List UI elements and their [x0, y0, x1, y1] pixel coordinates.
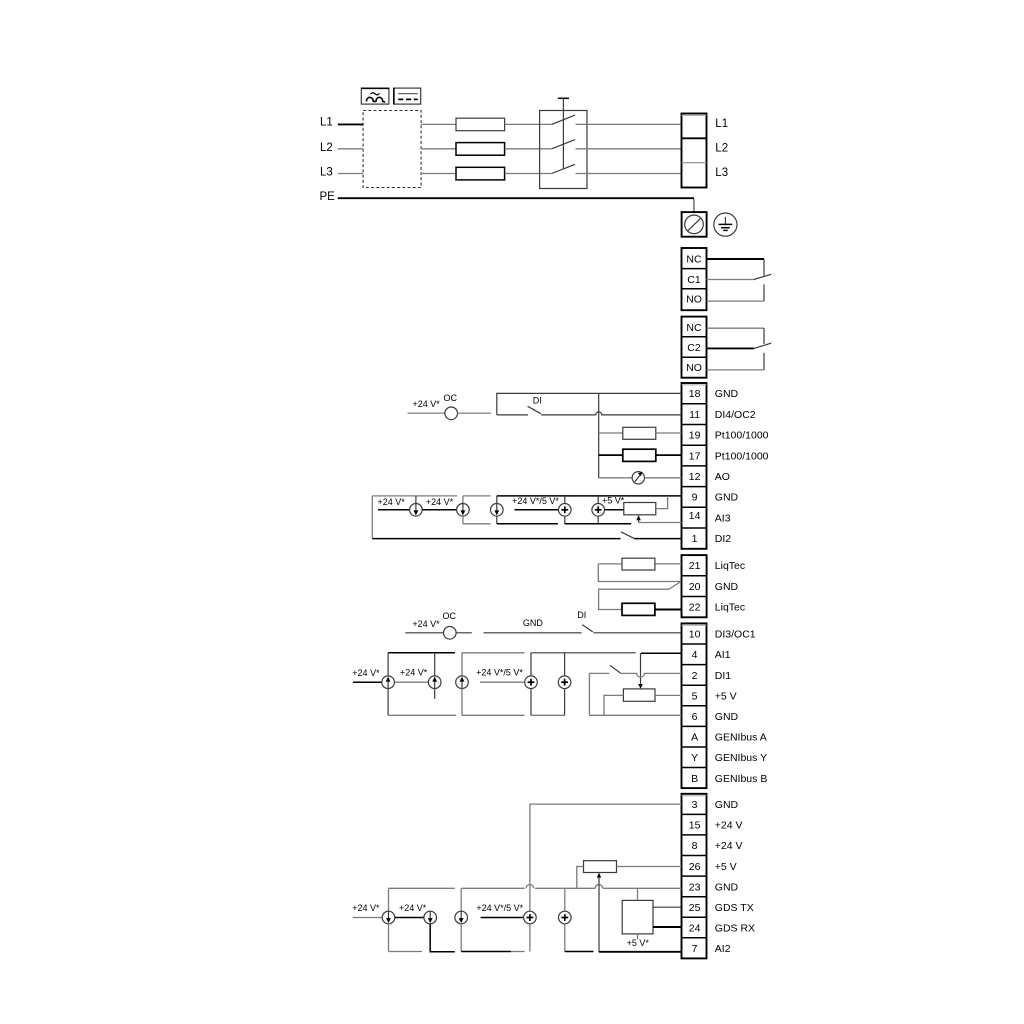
- svg-text:OC: OC: [443, 611, 457, 621]
- svg-text:+5 V*: +5 V*: [602, 496, 625, 506]
- svg-text:NO: NO: [686, 362, 702, 374]
- svg-text:6: 6: [692, 711, 698, 723]
- svg-text:+24 V: +24 V: [715, 820, 743, 832]
- svg-text:GENIbus A: GENIbus A: [715, 732, 767, 744]
- svg-text:+24 V*: +24 V*: [426, 497, 454, 507]
- svg-text:+24 V*: +24 V*: [412, 619, 440, 629]
- svg-text:NO: NO: [686, 293, 702, 305]
- svg-text:A: A: [691, 732, 698, 744]
- svg-text:GND: GND: [715, 799, 739, 811]
- svg-text:+5 V*: +5 V*: [627, 938, 650, 948]
- svg-text:+24 V: +24 V: [715, 840, 743, 852]
- svg-text:5: 5: [692, 690, 698, 702]
- svg-text:14: 14: [689, 510, 701, 522]
- svg-text:GND: GND: [715, 492, 739, 504]
- svg-text:NC: NC: [686, 253, 702, 265]
- svg-text:+24 V*: +24 V*: [399, 903, 427, 913]
- svg-text:B: B: [691, 773, 698, 785]
- svg-text:+5 V: +5 V: [715, 861, 737, 873]
- svg-text:22: 22: [689, 602, 701, 614]
- svg-text:DI1: DI1: [715, 670, 732, 682]
- svg-text:15: 15: [689, 820, 701, 832]
- svg-text:GENIbus Y: GENIbus Y: [715, 752, 767, 764]
- svg-text:DI: DI: [533, 395, 542, 405]
- svg-text:LiqTec: LiqTec: [715, 560, 745, 572]
- svg-text:23: 23: [689, 881, 701, 893]
- svg-text:GND: GND: [715, 881, 739, 893]
- svg-text:9: 9: [692, 492, 698, 504]
- svg-text:L3: L3: [320, 166, 333, 178]
- svg-text:L1: L1: [320, 116, 333, 128]
- svg-text:+24 V*: +24 V*: [352, 668, 380, 678]
- svg-text:L2: L2: [715, 143, 728, 155]
- svg-text:1: 1: [692, 533, 698, 545]
- svg-text:DI3/OC1: DI3/OC1: [715, 629, 756, 641]
- svg-text:DI4/OC2: DI4/OC2: [715, 409, 756, 421]
- svg-text:LiqTec: LiqTec: [715, 602, 745, 614]
- svg-text:GND: GND: [715, 388, 739, 400]
- svg-text:+24 V*/5 V*: +24 V*/5 V*: [512, 496, 559, 506]
- svg-text:11: 11: [689, 409, 700, 421]
- svg-text:21: 21: [689, 560, 701, 572]
- svg-text:AO: AO: [715, 471, 730, 483]
- svg-text:+24 V*: +24 V*: [352, 903, 380, 913]
- svg-text:OC: OC: [444, 393, 458, 403]
- svg-text:+24 V*: +24 V*: [378, 497, 406, 507]
- svg-text:20: 20: [689, 581, 701, 593]
- svg-text:L2: L2: [320, 142, 333, 154]
- svg-text:DI2: DI2: [715, 533, 732, 545]
- svg-text:PE: PE: [320, 191, 336, 203]
- svg-text:DI: DI: [577, 610, 586, 620]
- svg-text:Y: Y: [691, 752, 698, 764]
- svg-text:19: 19: [689, 430, 701, 442]
- svg-text:+24 V*/5 V*: +24 V*/5 V*: [476, 903, 523, 913]
- svg-text:GND: GND: [715, 711, 739, 723]
- svg-text:C1: C1: [687, 274, 701, 286]
- svg-text:AI3: AI3: [715, 512, 731, 524]
- svg-text:+24 V*/5 V*: +24 V*/5 V*: [476, 668, 523, 678]
- svg-text:17: 17: [689, 450, 701, 462]
- svg-text:GENIbus B: GENIbus B: [715, 773, 768, 785]
- svg-text:AI1: AI1: [715, 649, 731, 661]
- svg-text:Pt100/1000: Pt100/1000: [715, 450, 769, 462]
- svg-text:GDS RX: GDS RX: [715, 923, 755, 935]
- svg-text:7: 7: [692, 943, 698, 955]
- svg-text:GND: GND: [715, 581, 739, 593]
- svg-text:3: 3: [692, 799, 698, 811]
- svg-text:+24 V*: +24 V*: [400, 668, 428, 678]
- svg-text:L1: L1: [715, 118, 728, 130]
- svg-text:2: 2: [692, 670, 698, 682]
- svg-text:NC: NC: [686, 322, 702, 334]
- svg-text:Pt100/1000: Pt100/1000: [715, 430, 769, 442]
- svg-text:+5 V: +5 V: [715, 690, 737, 702]
- svg-text:4: 4: [692, 649, 698, 661]
- svg-text:12: 12: [689, 471, 701, 483]
- svg-text:C2: C2: [687, 342, 701, 354]
- svg-text:GDS TX: GDS TX: [715, 902, 754, 914]
- svg-text:+24 V*: +24 V*: [413, 399, 441, 409]
- svg-text:26: 26: [689, 861, 701, 873]
- svg-text:GND: GND: [523, 618, 544, 628]
- svg-text:8: 8: [692, 840, 698, 852]
- svg-text:24: 24: [689, 923, 701, 935]
- svg-text:AI2: AI2: [715, 943, 731, 955]
- svg-text:10: 10: [689, 629, 701, 641]
- svg-text:18: 18: [689, 388, 701, 400]
- svg-text:25: 25: [689, 902, 701, 914]
- svg-text:L3: L3: [715, 167, 728, 179]
